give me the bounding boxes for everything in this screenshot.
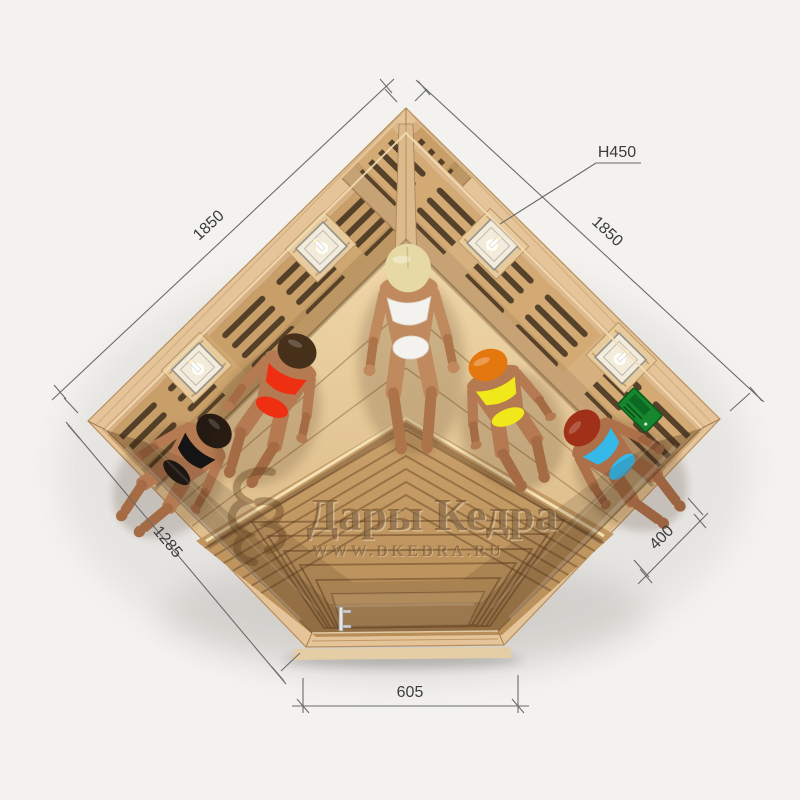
dim-label-door-front: 605 bbox=[397, 684, 424, 701]
sauna-illustration: Дары Кедра Дары Кедра WWW.DKEDRA.RU WWW.… bbox=[0, 0, 800, 800]
watermark-brand: Дары Кедра bbox=[307, 489, 558, 540]
dim-label-height: H450 bbox=[598, 144, 636, 161]
watermark-url: WWW.DKEDRA.RU bbox=[312, 543, 504, 560]
front-base-sill bbox=[292, 647, 512, 660]
sauna-top-view-image: Дары Кедра Дары Кедра WWW.DKEDRA.RU WWW.… bbox=[0, 0, 800, 800]
glass-reflection bbox=[334, 604, 474, 606]
dim-label-wall-left: 1850 bbox=[190, 207, 228, 244]
